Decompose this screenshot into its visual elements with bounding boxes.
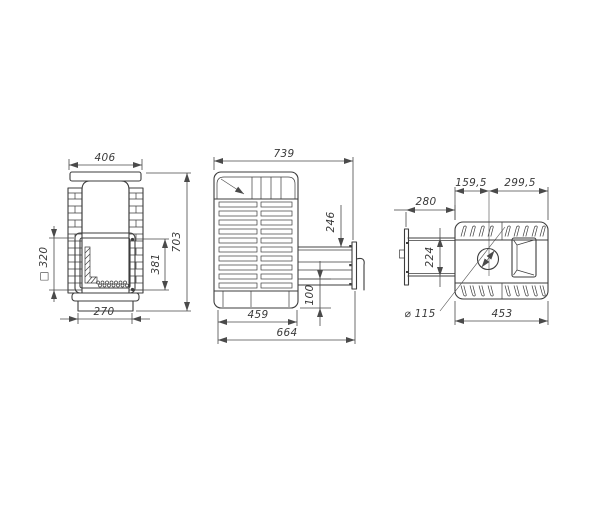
dim-side-depth-to-door-frame: 664 (218, 291, 355, 344)
dim-label: 270 (94, 306, 115, 318)
dim-top-tunnel-length: 280 (394, 196, 455, 227)
side-top-cap (214, 177, 298, 199)
dim-top-body-width: 453 (455, 301, 548, 325)
front-door-lever (85, 247, 97, 283)
top-vent-slots-front (461, 226, 545, 237)
top-view: 159,5 299,5 280 224 453 ⌀ 115 (394, 177, 548, 325)
side-louvers (219, 202, 292, 288)
dim-front-firebox-opening: □ 320 (38, 226, 74, 302)
front-top-cap (70, 172, 141, 181)
technical-drawing-canvas: 406 703 381 □ 320 270 (0, 0, 600, 510)
dim-label: 703 (171, 232, 183, 253)
dim-label: 159,5 (455, 177, 487, 189)
top-vent-slots-back (461, 286, 545, 297)
dim-label: 459 (248, 309, 269, 321)
top-body (455, 222, 548, 299)
top-stone-funnel (512, 238, 536, 277)
dim-label: 100 (304, 285, 316, 306)
dim-side-body-depth: 459 (218, 309, 297, 326)
side-tunnel (298, 242, 364, 290)
front-door-glass (80, 238, 130, 288)
stove-three-view-drawing: 406 703 381 □ 320 270 (0, 0, 600, 510)
side-door-handle (357, 258, 365, 290)
front-brick-column-right (129, 188, 143, 293)
side-base (214, 291, 298, 307)
dim-label: 246 (325, 212, 337, 233)
dim-label: 406 (95, 152, 116, 164)
front-bottom-flange (72, 293, 139, 301)
dim-label: 224 (424, 247, 436, 268)
dim-side-tunnel-bottom-offset: 100 (300, 261, 331, 326)
dim-label: 280 (416, 196, 437, 208)
dim-label: 453 (492, 308, 513, 320)
side-door-frame-plate (352, 242, 357, 289)
stone-load-arrow (221, 179, 244, 194)
dim-label: □ 320 (38, 247, 50, 282)
top-door-handle (400, 250, 405, 258)
front-door-hinge-top (131, 238, 134, 241)
dim-top-chimney-position: 159,5 299,5 (455, 177, 548, 220)
dim-top-tunnel-width: 224 (424, 228, 440, 287)
dim-front-base-width: 270 (60, 306, 150, 324)
dim-front-overall-width: 406 (69, 152, 142, 170)
dim-label: 381 (150, 254, 162, 275)
dim-label: 664 (277, 327, 298, 339)
dim-label: 739 (274, 148, 295, 160)
side-view: 739 246 100 459 664 (214, 148, 364, 344)
front-upper-panel (82, 181, 129, 233)
front-coals (97, 281, 129, 287)
dim-front-door-height: 381 (135, 239, 169, 290)
dim-side-tunnel-opening-height: 246 (300, 205, 347, 247)
top-door-frame-plate (405, 229, 409, 285)
side-body (214, 172, 298, 308)
front-view: 406 703 381 □ 320 270 (38, 152, 191, 324)
front-door-hinge-bottom (131, 288, 134, 291)
dim-label: 299,5 (504, 177, 536, 189)
dim-label: ⌀ 115 (404, 308, 435, 320)
